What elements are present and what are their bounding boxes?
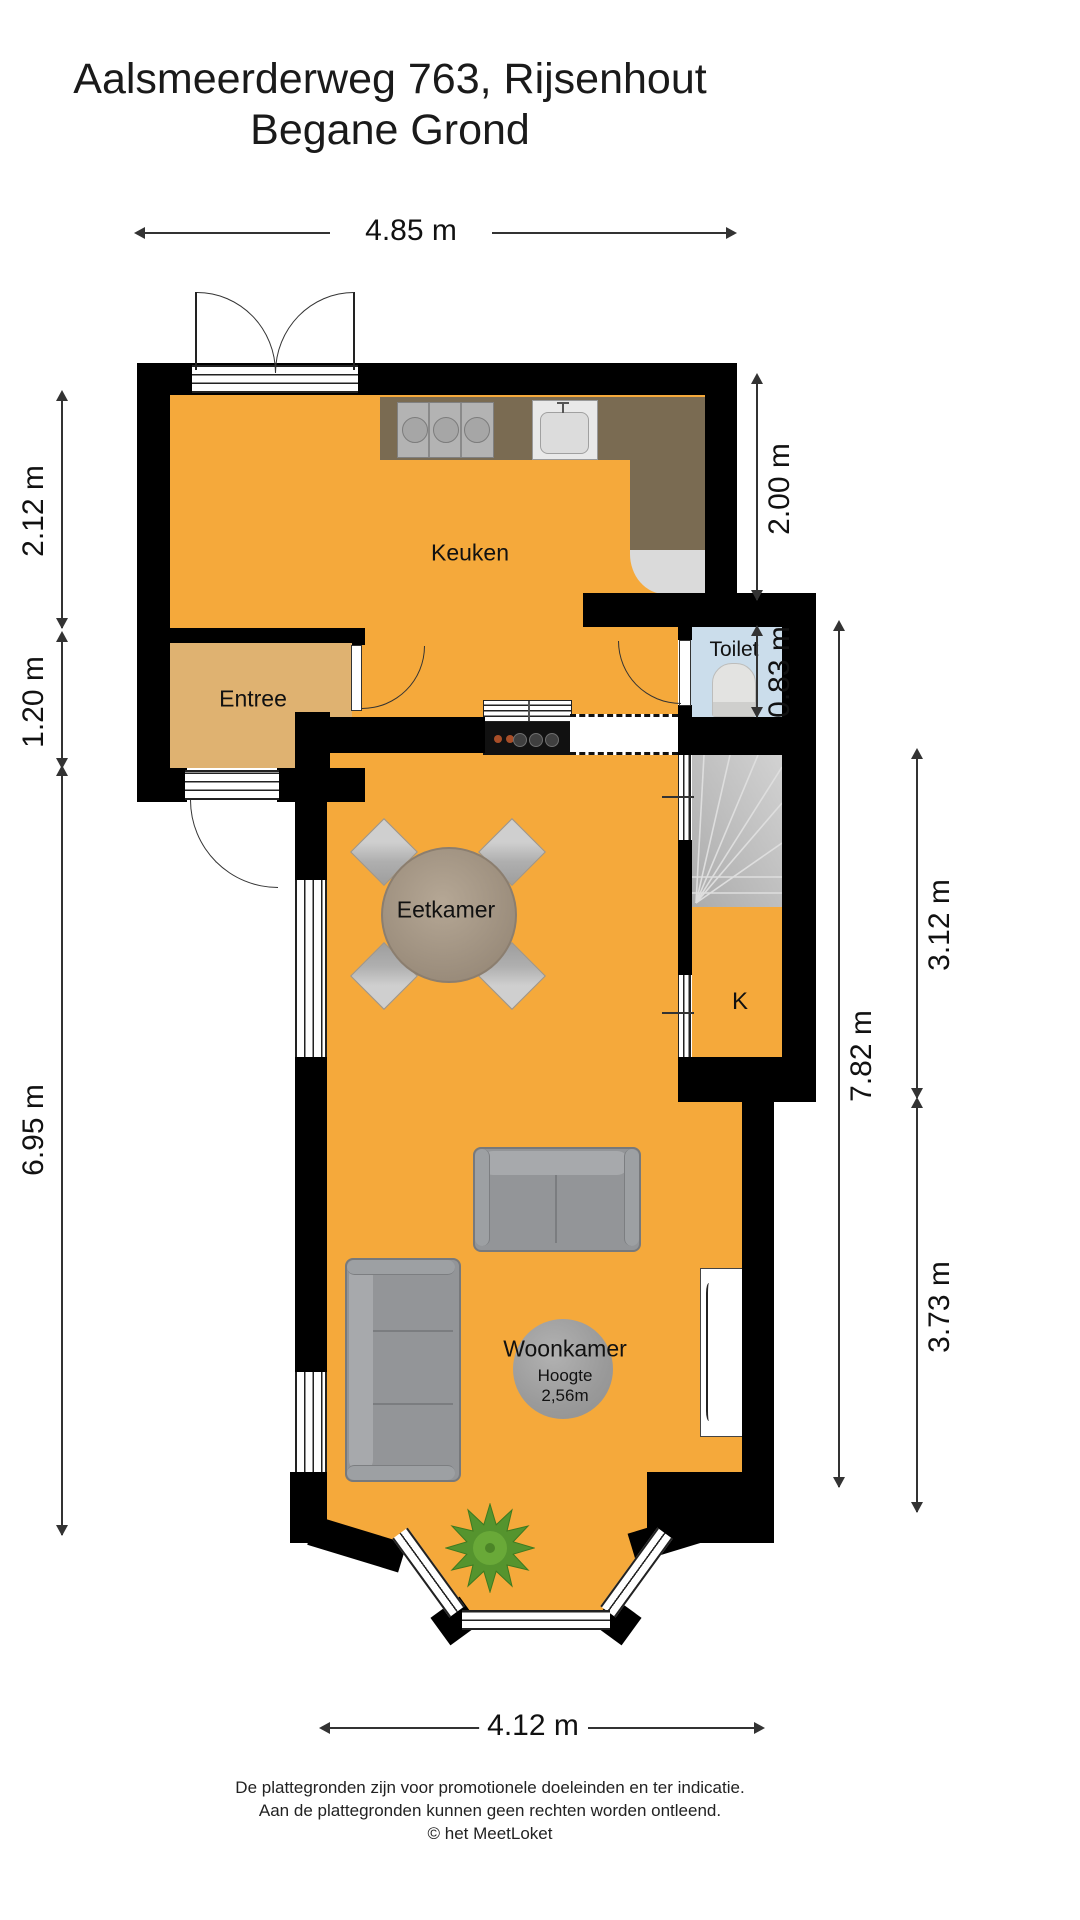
plant-icon [445, 1503, 535, 1593]
arrow-right-icon [754, 1722, 765, 1734]
arrow-up-icon [56, 765, 68, 776]
footer-disclaimer: De plattegronden zijn voor promotionele … [130, 1776, 850, 1845]
wall-west-b [295, 1057, 327, 1372]
arrow-up-icon [56, 390, 68, 401]
arrow-left-icon [319, 1722, 330, 1734]
footer-line2: Aan de plattegronden kunnen geen rechten… [130, 1799, 850, 1822]
open-passage [570, 714, 678, 755]
living-height-label: Hoogte [538, 1366, 593, 1386]
dim-left-0: 2.12 m [17, 465, 51, 557]
dim-right-4: 3.73 m [923, 1261, 957, 1353]
room-label-closet: K [732, 988, 748, 1016]
stove-icon [397, 402, 494, 458]
wall-toilet-west-bottom [678, 705, 692, 717]
arrow-up-icon [56, 631, 68, 642]
tv-cabinet-icon [700, 1268, 744, 1437]
wall-dining-north [330, 717, 485, 753]
wall-east-living [742, 1102, 774, 1475]
dim-line [916, 753, 918, 1098]
double-door-arc-left [197, 292, 276, 373]
dim-top: 4.85 m [357, 214, 465, 248]
dim-line [61, 636, 63, 768]
wall-below-toilet [678, 717, 782, 755]
dim-line [61, 395, 63, 628]
dim-left-1: 1.20 m [17, 656, 51, 748]
arrow-up-icon [751, 625, 763, 636]
arrow-up-icon [911, 1097, 923, 1108]
wall-front-left [137, 768, 187, 802]
dim-right-3: 3.12 m [923, 879, 957, 971]
kitchen-counter-right [630, 460, 705, 550]
arrow-right-icon [726, 227, 737, 239]
window-tick [662, 1012, 694, 1014]
dim-left-2: 6.95 m [13, 1082, 55, 1178]
front-door-arc [190, 800, 278, 888]
dim-bottom-line [588, 1727, 760, 1729]
wall-toilet-west-top [678, 627, 692, 640]
room-label-kitchen: Keuken [431, 540, 509, 567]
title-line1: Aalsmeerderweg 763, Rijsenhout [40, 55, 740, 104]
wall-entry-door-stub [352, 628, 365, 645]
arrow-down-icon [751, 590, 763, 601]
sink-icon [532, 400, 598, 460]
dim-line [838, 625, 840, 1487]
page-title: Aalsmeerderweg 763, Rijsenhout Begane Gr… [40, 55, 740, 155]
arrow-up-icon [751, 373, 763, 384]
arrow-down-icon [751, 707, 763, 718]
arrow-down-icon [833, 1477, 845, 1488]
wall-right-upper [705, 395, 737, 593]
toilet-icon [712, 663, 756, 717]
arrow-left-icon [134, 227, 145, 239]
window-west-dining [295, 880, 327, 1057]
wall-kitchen-se [583, 593, 816, 627]
arrow-down-icon [56, 618, 68, 629]
footer-line1: De plattegronden zijn voor promotionele … [130, 1776, 850, 1799]
kitchen-bar-passthrough [483, 700, 572, 722]
room-label-toilet: Toilet [709, 638, 758, 662]
window-bay-bottom [462, 1610, 610, 1630]
wall-west-a [295, 768, 327, 880]
dim-bottom-line [325, 1727, 480, 1729]
wall-stairs-west [678, 840, 692, 975]
dim-right-1: 0.83 m [763, 626, 797, 718]
front-door-sill [185, 770, 279, 800]
arrow-up-icon [911, 748, 923, 759]
dim-line [756, 378, 758, 600]
dim-line [756, 630, 758, 717]
footer-copyright: © het MeetLoket [130, 1822, 850, 1845]
dim-right-2: 7.82 m [845, 1010, 879, 1102]
sofa-two-seat-icon [473, 1147, 641, 1252]
room-label-dining: Eetkamer [397, 897, 495, 924]
wall-bump-bottom [678, 1057, 816, 1102]
title-line2: Begane Grond [40, 106, 740, 155]
kitchen-peninsula-counter [483, 722, 570, 755]
window-tick [662, 796, 694, 798]
arrow-up-icon [833, 620, 845, 631]
dim-bottom: 4.12 m [479, 1709, 587, 1743]
wall-left-upper [137, 395, 170, 802]
closet-floor [692, 907, 782, 1060]
arrow-down-icon [56, 1525, 68, 1536]
window-west-living [295, 1372, 327, 1472]
wall-entry-pillar [295, 712, 330, 768]
room-label-entry: Entree [219, 686, 287, 713]
double-door-arc-right [275, 292, 354, 373]
window-closet [678, 975, 691, 1057]
arrow-down-icon [911, 1502, 923, 1513]
entry-kitchen-door-leaf [351, 645, 362, 711]
sofa-three-seat-icon [345, 1258, 461, 1482]
dim-line [61, 770, 63, 1535]
dim-line [916, 1102, 918, 1512]
dim-top-line [492, 232, 732, 234]
wall-entry-divider [170, 628, 352, 643]
dim-top-line [140, 232, 330, 234]
stairs-icon [692, 755, 782, 907]
living-height-value: 2,56m [541, 1386, 588, 1406]
dim-right-0: 2.00 m [763, 443, 797, 535]
room-label-living: Woonkamer [503, 1336, 627, 1363]
